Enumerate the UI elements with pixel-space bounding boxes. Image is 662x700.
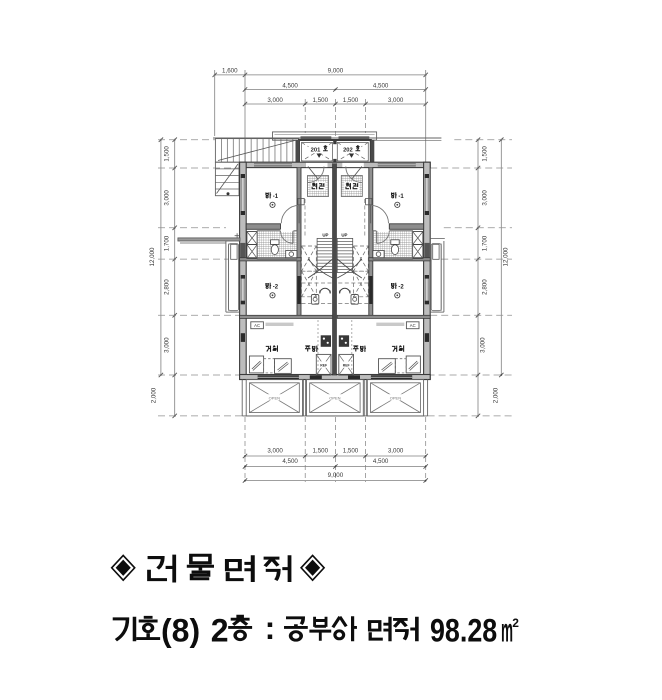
svg-text:REF: REF [320, 363, 327, 367]
svg-text:AC: AC [410, 323, 416, 328]
svg-text:2,000: 2,000 [151, 387, 158, 403]
svg-text:201: 201 [311, 147, 321, 153]
svg-text:REF: REF [343, 363, 350, 367]
svg-text:2: 2 [211, 612, 229, 648]
svg-text:3,000: 3,000 [388, 97, 404, 104]
svg-text:4,500: 4,500 [282, 458, 298, 465]
svg-text:3,000: 3,000 [480, 337, 487, 353]
svg-text:-1: -1 [273, 194, 279, 200]
svg-text:1,500: 1,500 [313, 448, 329, 455]
svg-text:-2: -2 [273, 285, 279, 291]
svg-text:-2: -2 [398, 285, 404, 291]
svg-text:98.28: 98.28 [430, 613, 497, 649]
svg-text:UP: UP [322, 233, 328, 238]
svg-text:UP: UP [341, 233, 347, 238]
svg-text:3,000: 3,000 [164, 190, 171, 206]
svg-text:OPEN: OPEN [390, 395, 401, 400]
svg-text:OPEN: OPEN [329, 395, 340, 400]
svg-text:1,500: 1,500 [482, 146, 489, 162]
svg-text::: : [265, 610, 276, 646]
svg-text:1,700: 1,700 [482, 235, 489, 251]
svg-text:12,000: 12,000 [149, 247, 156, 266]
svg-text:3,000: 3,000 [267, 448, 283, 455]
svg-text:4,500: 4,500 [373, 82, 389, 89]
svg-text:3,000: 3,000 [388, 448, 404, 455]
svg-text:9,000: 9,000 [328, 472, 344, 479]
svg-text:1,500: 1,500 [343, 448, 359, 455]
svg-text:1,500: 1,500 [343, 97, 359, 104]
svg-text:m: m [501, 613, 513, 650]
svg-text:2,800: 2,800 [482, 279, 489, 295]
svg-text:2,800: 2,800 [164, 279, 171, 295]
svg-text:1,500: 1,500 [164, 146, 171, 162]
svg-text:1,500: 1,500 [313, 97, 329, 104]
svg-text:9,000: 9,000 [328, 68, 344, 75]
svg-text:-1: -1 [398, 194, 404, 200]
svg-text:4,500: 4,500 [282, 82, 298, 89]
svg-text:2,000: 2,000 [493, 387, 500, 403]
svg-text:202: 202 [343, 147, 353, 153]
svg-text:AC: AC [254, 323, 260, 328]
svg-text:1,600: 1,600 [222, 68, 238, 75]
svg-text:3,000: 3,000 [267, 97, 283, 104]
svg-text:2: 2 [512, 616, 519, 630]
svg-text:OPEN: OPEN [269, 395, 280, 400]
svg-text:(8): (8) [161, 612, 200, 648]
svg-text:3,000: 3,000 [482, 190, 489, 206]
svg-text:3,000: 3,000 [164, 337, 171, 353]
svg-text:1,700: 1,700 [164, 235, 171, 251]
svg-text:12,000: 12,000 [503, 247, 510, 266]
svg-text:4,500: 4,500 [373, 458, 389, 465]
